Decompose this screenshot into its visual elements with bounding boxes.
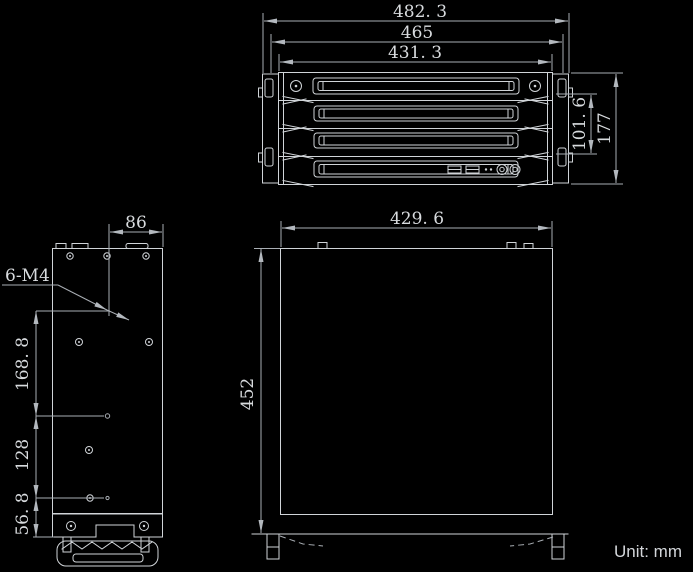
dim-text-width-tray: 431. 3: [388, 43, 442, 63]
top-dimensions: 429. 6 452: [238, 209, 552, 533]
front-screw-right: [530, 81, 541, 92]
top-view: 429. 6 452: [238, 209, 568, 559]
side-dimensions: 86 6-M4 168. 8 128 56. 8: [2, 213, 163, 537]
rear-feet: [252, 534, 568, 559]
callout-leader-2: [107, 310, 129, 320]
dim-text-height-opening: 101. 6: [570, 97, 590, 151]
thread-callout-text: 6-M4: [5, 266, 50, 286]
dim-text-spacing-lower: 56. 8: [13, 492, 33, 535]
side-view: 86 6-M4 168. 8 128 56. 8: [2, 213, 163, 566]
technical-drawing: 482. 3 465 431. 3 101. 6 177: [0, 0, 693, 572]
foot-leader-left: [280, 536, 323, 546]
bottom-bracket: [53, 514, 163, 537]
tray-handle-4: [314, 161, 518, 177]
tray-handle-1: [313, 78, 519, 94]
rack-ear-left: [259, 74, 279, 183]
foot-leader-right: [510, 537, 553, 546]
dim-text-width-body: 465: [401, 23, 433, 43]
dim-text-spacing-middle: 128: [13, 439, 33, 471]
hole-reference-mark-lower: [106, 496, 109, 499]
chassis-outline: [279, 73, 553, 185]
top-panel-outline: [281, 243, 553, 515]
dim-text-width-overall: 482. 3: [393, 2, 447, 22]
hole-reference-mark-upper: [105, 414, 109, 418]
callout-leader-1: [58, 285, 107, 310]
dim-text-spacing-upper: 168. 8: [13, 337, 33, 391]
side-mounting-holes: [67, 253, 153, 501]
front-ports: [448, 165, 520, 175]
bottom-handle: [57, 537, 158, 566]
front-screw-left: [291, 81, 302, 92]
dim-text-height-overall: 177: [595, 112, 615, 144]
tray-handle-3: [314, 133, 518, 148]
front-view: 482. 3 465 431. 3 101. 6 177: [259, 2, 624, 187]
unit-label: Unit: mm: [614, 542, 682, 561]
dim-text-offset-top: 86: [125, 213, 147, 233]
dim-text-top-width: 429. 6: [390, 209, 444, 229]
tray-handle-2: [314, 106, 518, 121]
dim-text-top-depth: 452: [238, 378, 258, 410]
side-panel-outline: [53, 244, 163, 514]
